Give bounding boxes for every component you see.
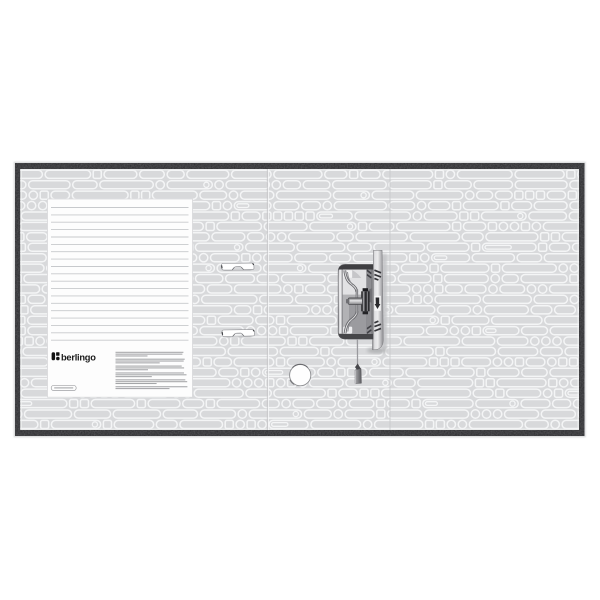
- svg-text:berlingo: berlingo: [61, 352, 96, 362]
